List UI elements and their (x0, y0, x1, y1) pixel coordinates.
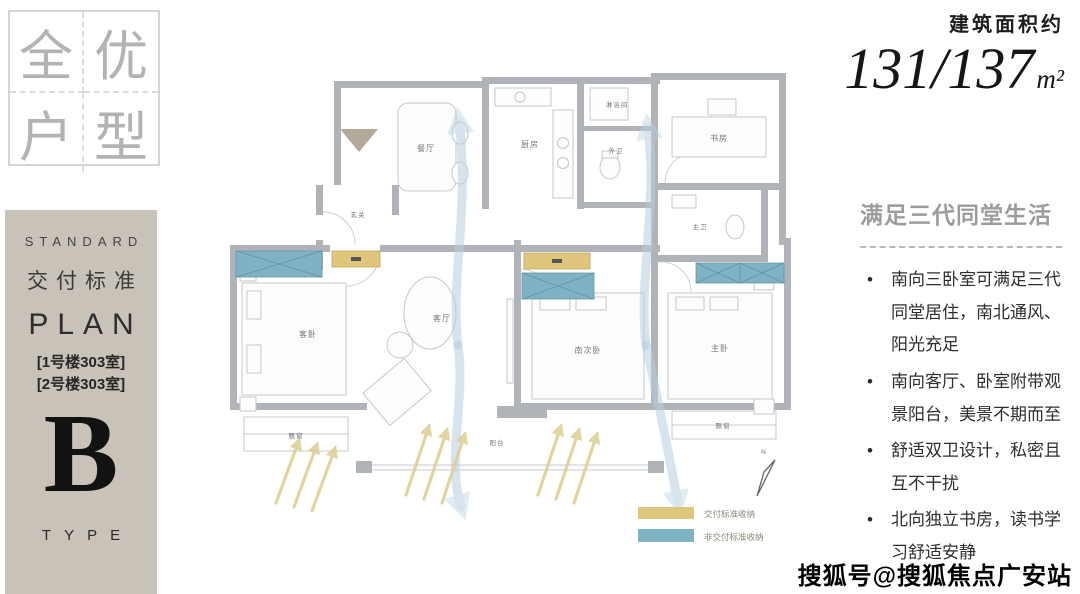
room-label-guest-bedroom: 客卧 (299, 329, 317, 339)
selling-points-list: 南向三卧室可满足三代同堂居住，南北通风、阳光充足 南向客厅、卧室附带观景阳台，美… (860, 264, 1074, 570)
floor-plan: N 玄关 餐厅 厨房 淋浴间 外卫 书房 主卫 客卧 客厅 南次卧 主卧 阳台 … (220, 55, 800, 547)
north-compass-icon: N (757, 449, 775, 496)
type-letter: B (5, 396, 157, 514)
badge-char: 优 (84, 12, 158, 93)
watermark: 搜狐号@搜狐焦点广安站 (798, 556, 1072, 591)
storage-legend: 交付标准收纳 非交付标准收纳 (638, 507, 764, 542)
bay-window-label: 飘窗 (716, 421, 731, 430)
badge-char: 户 (10, 93, 84, 172)
room-labels: 玄关 餐厅 厨房 淋浴间 外卫 书房 主卫 客卧 客厅 南次卧 主卧 阳台 飘窗… (289, 100, 731, 447)
room-label-dining: 餐厅 (417, 144, 435, 153)
legend-swatch-nonstandard (638, 529, 694, 542)
delivery-standard-label: 交付标准 (5, 265, 157, 295)
type-label: TYPE (5, 527, 157, 544)
legend-swatch-standard (638, 507, 694, 519)
room-label-study: 书房 (710, 133, 728, 143)
standard-label: STANDARD (5, 234, 157, 249)
benefit-item: 南向客厅、卧室附带观景阳台，美景不期而至 (860, 366, 1074, 431)
plan-label: PLAN (5, 308, 157, 342)
room-label-kitchen: 厨房 (521, 139, 539, 149)
dashed-divider (860, 246, 1062, 248)
room-label-master-bath: 主卫 (693, 222, 708, 231)
room-label-south-bedroom: 南次卧 (575, 345, 602, 355)
benefit-item: 南向三卧室可满足三代同堂居住，南北通风、阳光充足 (860, 264, 1074, 362)
selling-points-panel: 满足三代同堂生活 南向三卧室可满足三代同堂居住，南北通风、阳光充足 南向客厅、卧… (860, 196, 1074, 574)
badge-char: 全 (10, 12, 84, 93)
benefit-item: 舒适双卫设计，私密且互不干扰 (860, 435, 1074, 500)
room-label-master-bedroom: 主卧 (711, 343, 729, 353)
svg-text:N: N (761, 449, 767, 456)
bay-window-label: 飘窗 (289, 431, 304, 440)
room-label-balcony: 阳台 (490, 438, 505, 447)
built-area-unit: m² (1036, 64, 1064, 94)
room-label-living: 客厅 (433, 313, 451, 323)
balcony-and-bay-windows (244, 406, 776, 473)
built-area-value: 131/137 (844, 36, 1034, 101)
built-area-label: 建筑面积约 (844, 8, 1064, 37)
built-area-block: 建筑面积约 131/137m² (844, 8, 1064, 100)
legend-label-standard: 交付标准收纳 (704, 509, 755, 519)
door-arcs (323, 153, 695, 295)
room-label-guest-bath: 外卫 (609, 146, 624, 155)
room-label-entrance: 玄关 (351, 210, 366, 219)
direction-triangle-icon (340, 129, 378, 152)
unit-numbers: [1号楼303室] [2号楼303室] (5, 352, 157, 396)
selling-points-heading: 满足三代同堂生活 (860, 196, 1074, 230)
built-area-figure: 131/137m² (844, 39, 1064, 100)
badge-char: 型 (84, 93, 158, 172)
unit-line: [1号楼303室] (5, 352, 157, 374)
plan-type-panel: STANDARD 交付标准 PLAN [1号楼303室] [2号楼303室] B… (5, 210, 157, 594)
quality-badge: 全 优 户 型 (8, 10, 160, 166)
legend-label-nonstandard: 非交付标准收纳 (704, 532, 764, 542)
floor-plan-svg: N 玄关 餐厅 厨房 淋浴间 外卫 书房 主卫 客卧 客厅 南次卧 主卧 阳台 … (220, 55, 800, 547)
poster: 全 优 户 型 STANDARD 交付标准 PLAN [1号楼303室] [2号… (0, 0, 1080, 594)
room-label-shower: 淋浴间 (606, 100, 629, 109)
